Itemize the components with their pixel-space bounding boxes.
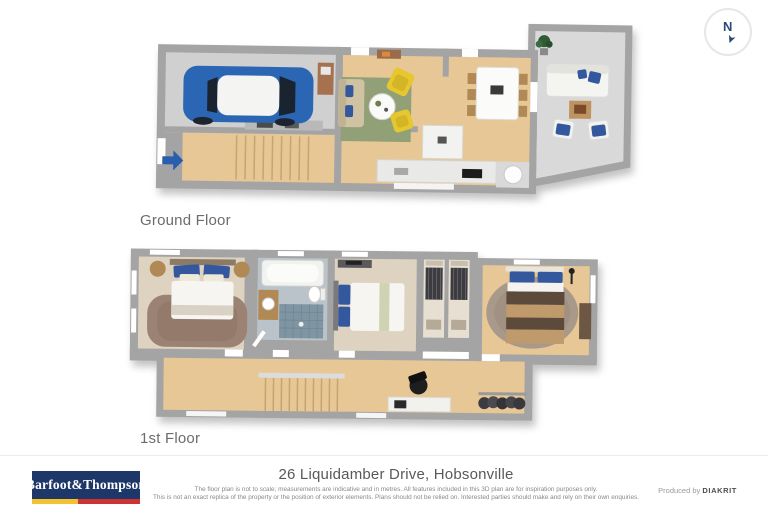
- kitchen-counter: [377, 160, 496, 184]
- master-door-gap: [225, 349, 243, 356]
- patio-chair-2: [588, 120, 610, 140]
- water-tank: [504, 166, 522, 184]
- compass-icon: N ➤: [704, 8, 752, 56]
- patio-door-gap: [530, 82, 537, 112]
- patio-coffee-table: [569, 101, 591, 119]
- window: [150, 250, 180, 255]
- shower: [279, 304, 323, 338]
- bedroom3-door-gap: [482, 354, 500, 361]
- top-door-gap-1: [351, 47, 369, 55]
- first-floor-drawing: [127, 243, 624, 441]
- produced-by: Produced by DIAKRIT: [658, 486, 737, 495]
- hall-closet-clothes: [478, 392, 526, 410]
- bedroom2-wardrobe-wall: [417, 251, 424, 337]
- window: [278, 251, 304, 256]
- ground-floor-plan: [145, 22, 665, 210]
- bedroom2-dresser: [338, 260, 372, 268]
- patio-sofa: [546, 64, 608, 97]
- property-address: 26 Liquidamber Drive, Hobsonville: [106, 466, 686, 483]
- ground-floor-label: Ground Floor: [140, 212, 231, 229]
- producer-name: DIAKRIT: [702, 486, 737, 495]
- upper-stairs: [258, 373, 344, 412]
- compass-north-label: N: [723, 21, 733, 33]
- footer-center: 26 Liquidamber Drive, Hobsonville The fl…: [106, 466, 686, 501]
- toilet: [308, 286, 325, 302]
- window: [514, 259, 540, 264]
- wardrobe-bedroom3-wall: [469, 252, 478, 358]
- footer: Barfoot&Thompson 26 Liquidamber Drive, H…: [0, 455, 768, 513]
- garage-car: [183, 66, 314, 127]
- bedroom3-dresser: [579, 303, 591, 339]
- master-bath-wall: [251, 250, 258, 334]
- floorplan-page: N ➤: [0, 0, 768, 512]
- bedroom2-door-gap: [339, 351, 355, 358]
- first-floor-plan: [127, 243, 624, 441]
- cabinet-item: [321, 67, 331, 75]
- disclaimer-line-2: This is not an exact replica of the prop…: [106, 494, 686, 502]
- patio-chair-1: [552, 119, 575, 140]
- logo-stripe-yellow: [32, 499, 78, 504]
- window: [342, 252, 368, 257]
- window: [590, 275, 595, 303]
- living-sofa: [338, 79, 365, 127]
- dining-set: [467, 67, 528, 120]
- top-door-gap-2: [462, 49, 478, 57]
- window: [131, 308, 136, 332]
- disclaimer-line-1: The floor plan is not to scale; measurem…: [106, 486, 686, 494]
- wardrobe-opening-gap: [423, 352, 469, 359]
- island-sink: [438, 137, 447, 144]
- bathtub: [262, 260, 324, 287]
- wardrobe-divider-wall: [444, 260, 449, 338]
- compass-arrow-icon: ➤: [725, 32, 738, 44]
- produced-by-label: Produced by: [658, 486, 700, 495]
- window: [186, 411, 226, 416]
- bathroom-vanity: [258, 290, 278, 320]
- rear-slider-window: [394, 183, 454, 190]
- window: [131, 270, 136, 294]
- living-console: [377, 50, 401, 59]
- first-floor-label: 1st Floor: [140, 430, 200, 447]
- bath-door-gap: [273, 350, 289, 357]
- ground-floor-drawing: [145, 22, 665, 210]
- living-dining-stub-wall: [443, 49, 449, 77]
- window: [356, 413, 386, 418]
- entry-hall-floor: [182, 133, 335, 183]
